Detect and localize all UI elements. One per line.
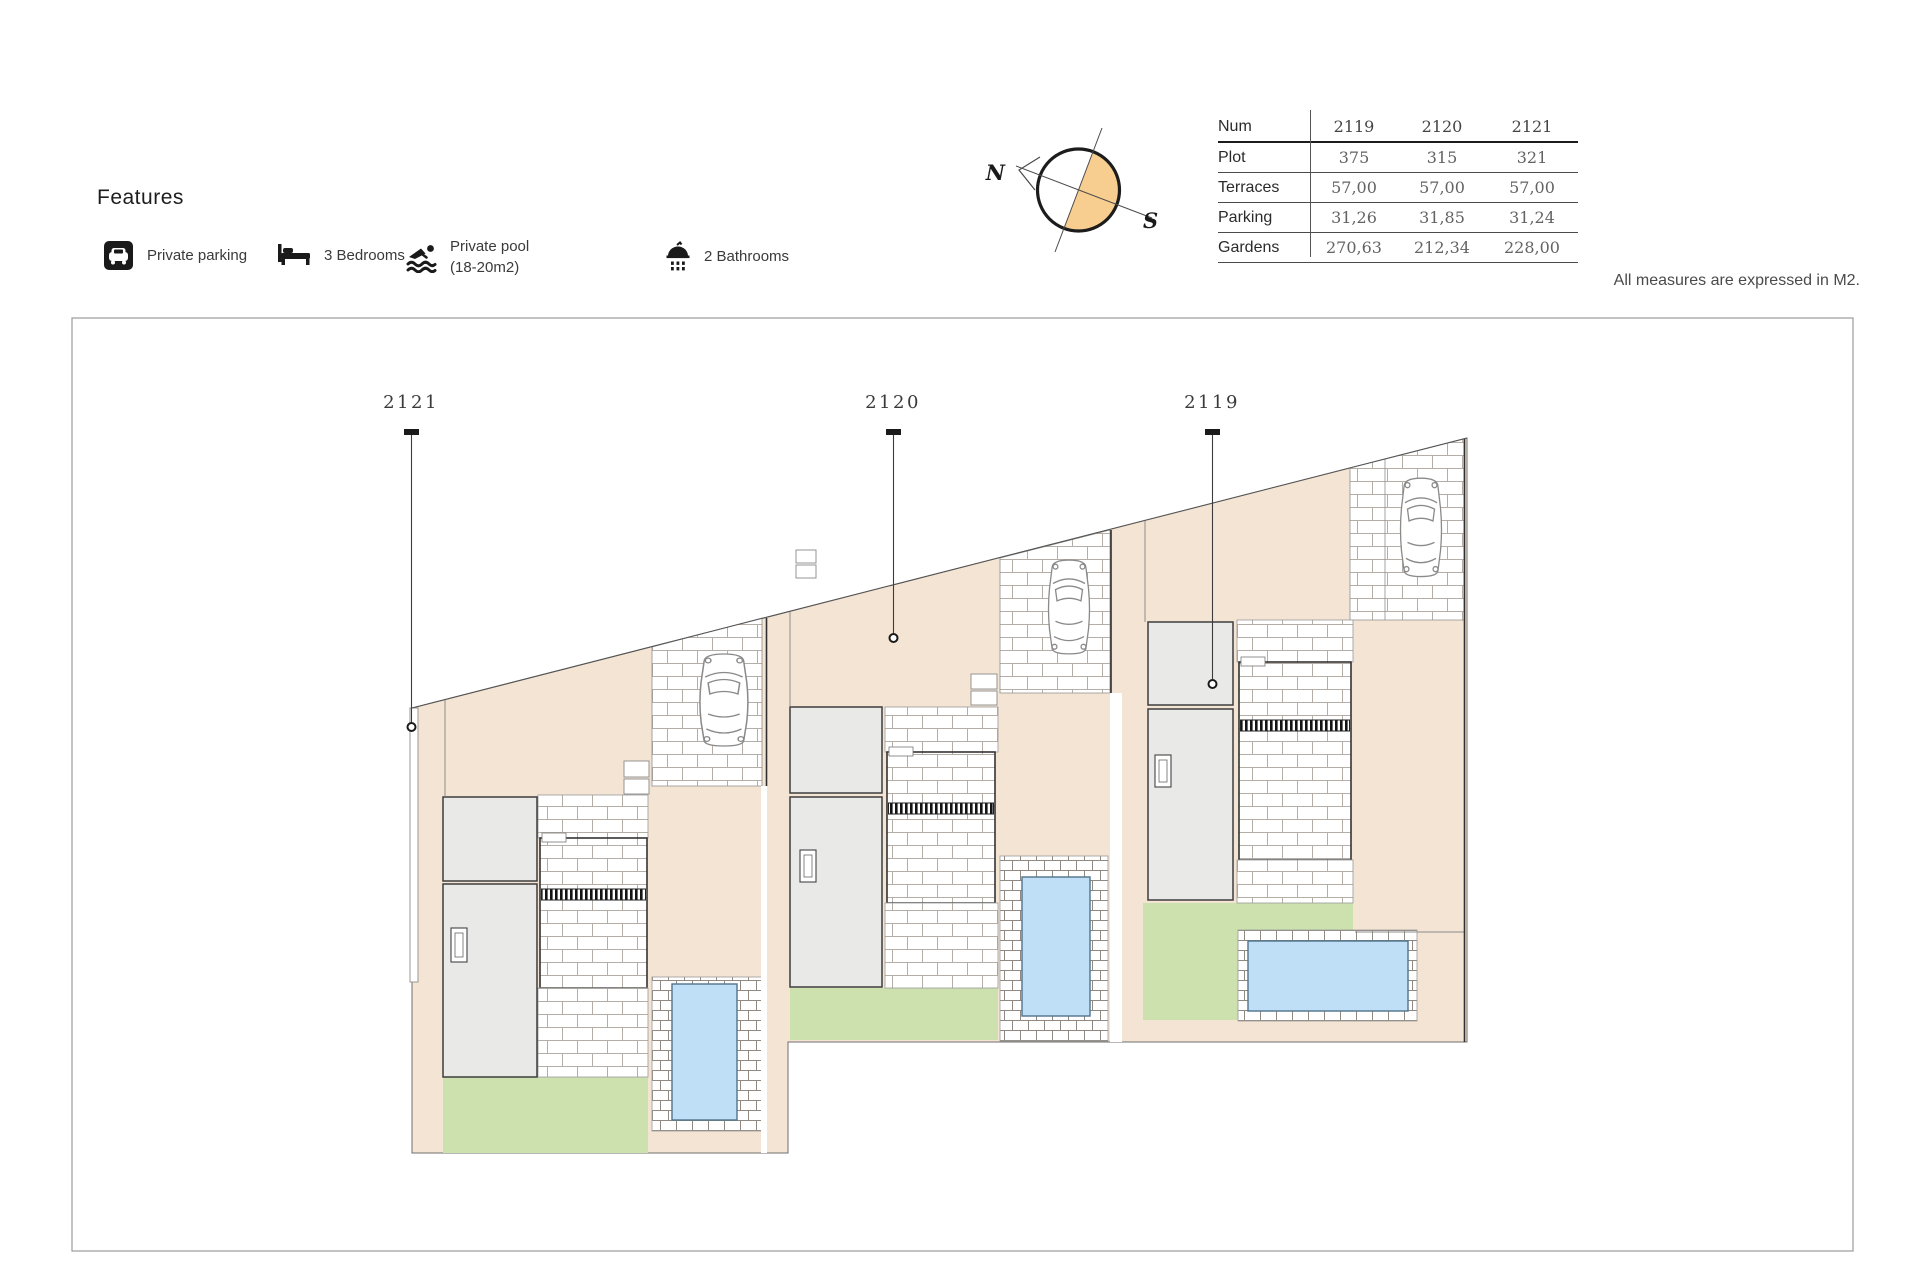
callout-tick	[404, 429, 419, 435]
pergola-louver-2119	[1241, 720, 1350, 731]
pool-2119	[1248, 941, 1408, 1011]
callout-2121: 2121	[383, 392, 439, 731]
door-leaf-2119	[1159, 760, 1167, 782]
house-2120	[790, 797, 882, 987]
callout-tick	[1205, 429, 1220, 435]
ac-unit	[796, 550, 816, 563]
callout-marker	[890, 634, 898, 642]
car-2121	[700, 654, 748, 746]
ac-unit	[971, 691, 997, 705]
compass-south-label: S	[1143, 208, 1158, 233]
pool-2120	[1022, 877, 1090, 1016]
house-2119	[1148, 709, 1233, 900]
terrace-step-2120	[889, 747, 913, 756]
terrace-lower-2119	[1237, 860, 1353, 903]
terrace-frame-2121	[540, 838, 647, 988]
terrace-lower-2121	[538, 988, 648, 1077]
plot-label-2121: 2121	[383, 392, 439, 413]
compass-north-label: N	[985, 160, 1006, 185]
ac-unit	[971, 674, 997, 689]
terrace-step-2121	[542, 833, 566, 842]
site-plan: 2121 2120 2119 N S	[0, 0, 1920, 1280]
plot-label-2120: 2120	[865, 392, 921, 413]
terrace-frame-2120	[887, 752, 995, 903]
terrace-frame-2119	[1239, 662, 1351, 860]
terrace-band-2120	[885, 707, 998, 752]
pergola-louver-2120	[889, 803, 994, 814]
garden-2120	[790, 988, 998, 1040]
pergola-louver-2121	[542, 889, 646, 900]
terrace-step-2119	[1241, 657, 1265, 666]
callout-marker	[408, 723, 416, 731]
plot-gap-2121-2120	[761, 786, 767, 1153]
plot-gap-2120-2119	[1110, 693, 1122, 1042]
terrace-lower-2120	[885, 903, 998, 988]
plot-label-2119: 2119	[1184, 392, 1240, 413]
garden-2121	[443, 1077, 648, 1153]
door-leaf-2121	[455, 933, 463, 957]
ac-unit	[624, 761, 649, 777]
compass: N S	[985, 128, 1158, 252]
ac-unit	[624, 779, 649, 794]
ac-unit	[796, 565, 816, 578]
boundary-wall-2121	[410, 708, 418, 982]
garage-2121	[443, 797, 537, 881]
terrace-band-2121	[538, 795, 648, 838]
door-leaf-2120	[804, 855, 812, 877]
callout-tick	[886, 429, 901, 435]
garage-2120	[790, 707, 882, 793]
garage-2119	[1148, 622, 1233, 705]
callout-marker	[1209, 680, 1217, 688]
pool-2121	[672, 984, 737, 1120]
car-2119	[1401, 478, 1442, 576]
house-2121	[443, 884, 537, 1077]
terrace-band-2119	[1237, 620, 1353, 662]
car-2120	[1049, 560, 1090, 654]
